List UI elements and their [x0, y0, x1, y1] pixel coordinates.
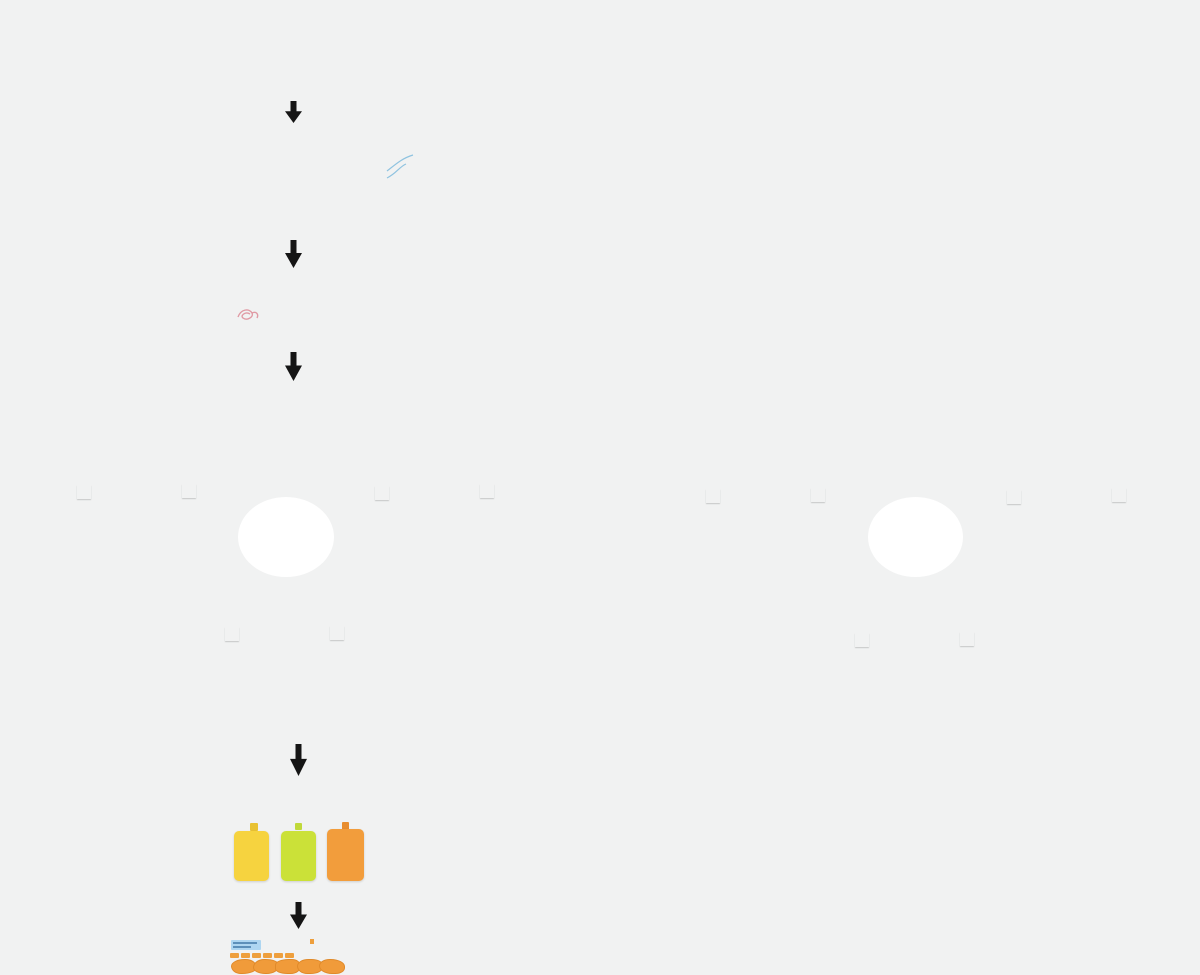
note-tab-yellow[interactable]: [250, 823, 258, 831]
table-b-right-sticky[interactable]: [480, 484, 494, 498]
result-chip[interactable]: [285, 953, 294, 958]
result-chip[interactable]: [274, 953, 283, 958]
step-3-badge: [351, 139, 361, 149]
category-note-yellow[interactable]: [234, 831, 269, 881]
step-5[interactable]: [487, 140, 531, 152]
flow-arrow-down-4[interactable]: [290, 744, 307, 776]
flow-arrow-down-3[interactable]: [285, 352, 302, 381]
flow-arrow-down-1[interactable]: [285, 101, 302, 123]
example-table-3-right-sticky[interactable]: [960, 632, 974, 646]
table-c-left-sticky[interactable]: [225, 627, 239, 641]
step-1-badge: [233, 136, 243, 146]
example-table-group-1[interactable]: [706, 487, 826, 588]
flow-arrow-down-2[interactable]: [285, 240, 302, 268]
card-strip-panel[interactable]: [227, 78, 358, 100]
result-chip[interactable]: [241, 953, 250, 958]
section-label-chip[interactable]: [231, 940, 261, 950]
example-table-2[interactable]: [1025, 487, 1111, 587]
expectation-table-group-c[interactable]: [225, 624, 345, 725]
result-chip[interactable]: [230, 953, 239, 958]
process-steps-panel[interactable]: [227, 123, 557, 228]
step-1[interactable]: [233, 136, 277, 148]
example-table-group-2[interactable]: [1007, 487, 1127, 588]
step-4[interactable]: [436, 141, 480, 153]
category-note-green[interactable]: [281, 831, 316, 881]
scribble-doodle-icon: [235, 305, 261, 323]
summary-panel[interactable]: [227, 937, 371, 975]
brainstorm-sticky-panel[interactable]: [227, 0, 557, 43]
example-table-1-right-sticky[interactable]: [811, 488, 825, 502]
step-2[interactable]: [306, 139, 346, 151]
expectation-table-group-a[interactable]: [77, 483, 197, 584]
category-notes-panel[interactable]: [227, 804, 371, 893]
step-4-label-chip: [448, 141, 476, 151]
mini-sticky-note[interactable]: [310, 939, 314, 944]
example-marketplace-circle[interactable]: [868, 497, 963, 577]
category-note-orange[interactable]: [327, 829, 364, 881]
table-b-left-sticky[interactable]: [375, 486, 389, 500]
step-2-badge: [306, 139, 316, 149]
example-table-3-left-sticky[interactable]: [855, 633, 869, 647]
scribble-blob[interactable]: [319, 959, 345, 974]
expectation-table-a[interactable]: [95, 483, 181, 583]
example-table-2-left-sticky[interactable]: [1007, 490, 1021, 504]
step-5-badge: [487, 140, 497, 150]
connector-lines: [367, 148, 427, 183]
step-5-label-chip: [499, 140, 527, 150]
text-line: [233, 942, 257, 944]
example-table-2-right-sticky[interactable]: [1112, 488, 1126, 502]
text-line: [233, 946, 251, 948]
step-1-label-chip: [245, 136, 273, 146]
example-table-1-left-sticky[interactable]: [706, 489, 720, 503]
marketplace-frame[interactable]: [0, 399, 567, 734]
flow-arrow-down-5[interactable]: [290, 902, 307, 929]
step-2-label-chip: [318, 139, 342, 149]
step-4-badge: [436, 141, 446, 151]
table-a-right-sticky[interactable]: [182, 484, 196, 498]
selection-grid-panel[interactable]: [227, 289, 359, 332]
note-tab-green[interactable]: [295, 823, 302, 830]
example-table-1[interactable]: [724, 487, 810, 587]
marketplace-circle[interactable]: [238, 497, 334, 577]
result-chip[interactable]: [252, 953, 261, 958]
whiteboard-canvas[interactable]: [0, 0, 1200, 975]
table-a-left-sticky[interactable]: [77, 485, 91, 499]
table-c-right-sticky[interactable]: [330, 626, 344, 640]
expectation-table-group-b[interactable]: [375, 483, 495, 584]
result-chip[interactable]: [263, 953, 272, 958]
expectation-table-b[interactable]: [393, 483, 479, 583]
example-table-group-3[interactable]: [855, 630, 975, 731]
example-table-3[interactable]: [873, 630, 959, 730]
expectation-table-c[interactable]: [243, 624, 329, 724]
example-frame[interactable]: [632, 399, 1200, 734]
